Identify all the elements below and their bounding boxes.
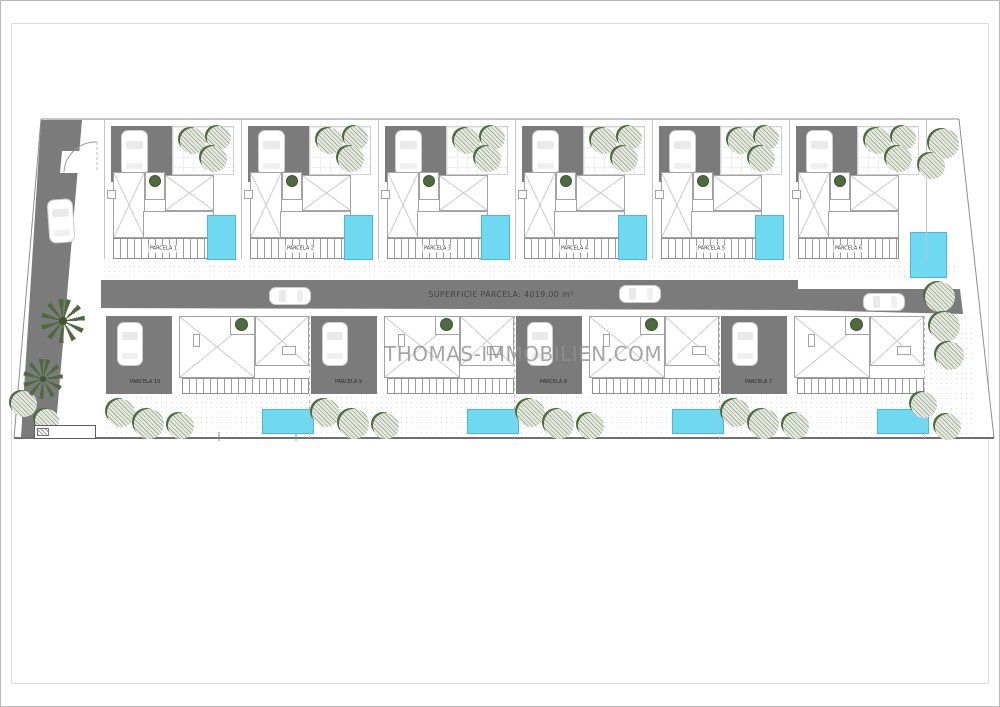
- house-body: [554, 211, 625, 238]
- terrace: PARCELA 1: [113, 238, 214, 259]
- parcel-unit-top: PARCELA 2: [241, 119, 378, 279]
- car-icon: [863, 293, 905, 311]
- pool: [910, 232, 947, 278]
- tree-icon: [107, 399, 135, 427]
- tree-icon: [149, 175, 161, 187]
- tree-icon: [919, 153, 945, 179]
- terrace: [387, 378, 514, 394]
- tree-icon: [612, 146, 638, 172]
- car-icon: [322, 322, 348, 366]
- car-icon: [46, 198, 75, 244]
- house-roof: [870, 316, 924, 366]
- tree-icon: [168, 413, 194, 439]
- door-icon: [518, 190, 527, 199]
- terrace: [592, 378, 719, 394]
- house-body: [828, 211, 899, 238]
- tree-icon: [749, 146, 775, 172]
- tree-icon: [134, 409, 164, 439]
- pool: [618, 215, 647, 260]
- car-icon: [121, 130, 148, 176]
- door-icon: [808, 334, 815, 347]
- house-roof: [255, 316, 309, 366]
- property-line: [514, 316, 515, 438]
- tree-icon: [911, 392, 937, 418]
- tree-icon: [373, 413, 399, 439]
- house-roof: [439, 175, 488, 211]
- parcel-label: PARCELA 6: [833, 245, 864, 252]
- house-body: [417, 211, 488, 238]
- door-icon: [381, 190, 390, 199]
- tree-icon: [440, 318, 453, 331]
- tree-icon: [517, 399, 545, 427]
- terrace: PARCELA 3: [387, 238, 488, 259]
- door-icon: [107, 190, 116, 199]
- car-icon: [532, 130, 559, 176]
- tree-icon: [936, 342, 964, 370]
- parcel-label: PARCELA 8: [538, 379, 569, 386]
- house-roof: [661, 172, 693, 238]
- tree-icon: [475, 146, 501, 172]
- house-roof: [850, 175, 899, 211]
- house-roof: [576, 175, 625, 211]
- window-icon: [897, 346, 911, 355]
- pool: [672, 409, 724, 434]
- terrace: PARCELA 5: [661, 238, 762, 259]
- car-icon: [258, 130, 285, 176]
- terrace: [182, 378, 309, 394]
- site-plan: PARCELA 1PARCELA 2PARCELA 3PARCELA 4PARC…: [1, 1, 1000, 707]
- car-icon: [806, 130, 833, 176]
- parcel-label: PARCELA 2: [285, 245, 316, 252]
- watermark: THOMAS-IMMOBILIEN.COM: [384, 342, 662, 366]
- tree-icon: [201, 146, 227, 172]
- house-roof: [250, 172, 282, 238]
- door-icon: [244, 190, 253, 199]
- parcel-unit-bottom: PARCELA 9: [309, 316, 514, 438]
- parcel-unit-top: PARCELA 6: [789, 119, 926, 279]
- parcel-unit-bottom: PARCELA 8: [514, 316, 719, 438]
- tree-icon: [339, 409, 369, 439]
- property-line: [719, 316, 720, 438]
- parcel-unit-top: PARCELA 4: [515, 119, 652, 279]
- parcel-unit-top: PARCELA 3: [378, 119, 515, 279]
- house-roof: [524, 172, 556, 238]
- car-icon: [732, 322, 758, 366]
- window-icon: [692, 346, 706, 355]
- terrace: PARCELA 4: [524, 238, 625, 259]
- property-line: [378, 119, 379, 259]
- tree-icon: [317, 128, 343, 154]
- house-roof: [713, 175, 762, 211]
- parcel-unit-top: PARCELA 5: [652, 119, 789, 279]
- parcel-label: PARCELA 1: [148, 245, 179, 252]
- car-icon: [669, 130, 696, 176]
- terrace: PARCELA 6: [798, 238, 899, 259]
- parcel-label: PARCELA 5: [696, 245, 727, 252]
- tree-icon: [645, 318, 658, 331]
- palm-tree-icon: [41, 299, 85, 343]
- tree-icon: [930, 312, 960, 342]
- tree-icon: [560, 175, 572, 187]
- car-icon: [619, 285, 661, 303]
- house-body: [691, 211, 762, 238]
- pool: [481, 215, 510, 260]
- palm-tree-icon: [23, 359, 63, 399]
- tree-icon: [423, 175, 435, 187]
- door-icon: [655, 190, 664, 199]
- terrace: [797, 378, 924, 394]
- tree-icon: [834, 175, 846, 187]
- house-roof: [665, 316, 719, 366]
- tree-icon: [886, 146, 912, 172]
- parcel-unit-top: PARCELA 1: [104, 119, 241, 279]
- house-roof: [165, 175, 214, 211]
- tree-icon: [850, 318, 863, 331]
- pool: [467, 409, 519, 434]
- parcel-label: PARCELA 10: [128, 379, 162, 386]
- tree-icon: [935, 414, 961, 440]
- tree-icon: [783, 413, 809, 439]
- parcel-label: PARCELA 4: [559, 245, 590, 252]
- parcel-label: PARCELA 7: [743, 379, 774, 386]
- car-icon: [269, 287, 311, 305]
- property-line: [104, 119, 105, 259]
- property-line: [789, 119, 790, 259]
- pool: [207, 215, 236, 260]
- site-plan-page: PARCELA 1PARCELA 2PARCELA 3PARCELA 4PARC…: [0, 0, 1000, 707]
- tree-icon: [865, 128, 891, 154]
- utility-box-hatch: [37, 428, 49, 436]
- tree-icon: [591, 128, 617, 154]
- pool: [344, 215, 373, 260]
- parcel-label: PARCELA 9: [333, 379, 364, 386]
- tree-icon: [728, 128, 754, 154]
- road-area-label: SUPERFICIE PARCELA: 4019.00 m²: [396, 290, 606, 299]
- car-icon: [117, 322, 143, 366]
- tree-icon: [338, 146, 364, 172]
- tree-icon: [286, 175, 298, 187]
- door-icon: [792, 190, 801, 199]
- pool: [755, 215, 784, 260]
- tree-icon: [235, 318, 248, 331]
- tree-icon: [180, 128, 206, 154]
- door-icon: [193, 334, 200, 347]
- tree-icon: [925, 282, 955, 312]
- house-roof: [798, 172, 830, 238]
- property-line: [515, 119, 516, 259]
- tree-icon: [578, 413, 604, 439]
- property-line: [924, 316, 925, 438]
- window-icon: [282, 346, 296, 355]
- property-line: [241, 119, 242, 259]
- parcel-unit-bottom: PARCELA 7: [719, 316, 924, 438]
- house-roof: [302, 175, 351, 211]
- tree-icon: [454, 128, 480, 154]
- property-line: [926, 119, 927, 259]
- parcel-label: PARCELA 3: [422, 245, 453, 252]
- tree-icon: [749, 409, 779, 439]
- property-line: [652, 119, 653, 259]
- tree-icon: [544, 409, 574, 439]
- pool: [262, 409, 314, 434]
- property-line: [309, 316, 310, 438]
- house-body: [280, 211, 351, 238]
- house-roof: [387, 172, 419, 238]
- house-roof: [113, 172, 145, 238]
- house-body: [143, 211, 214, 238]
- tree-icon: [312, 399, 340, 427]
- tree-icon: [697, 175, 709, 187]
- terrace: PARCELA 2: [250, 238, 351, 259]
- parcel-unit-bottom: PARCELA 10: [104, 316, 309, 438]
- car-icon: [395, 130, 422, 176]
- tree-icon: [722, 399, 750, 427]
